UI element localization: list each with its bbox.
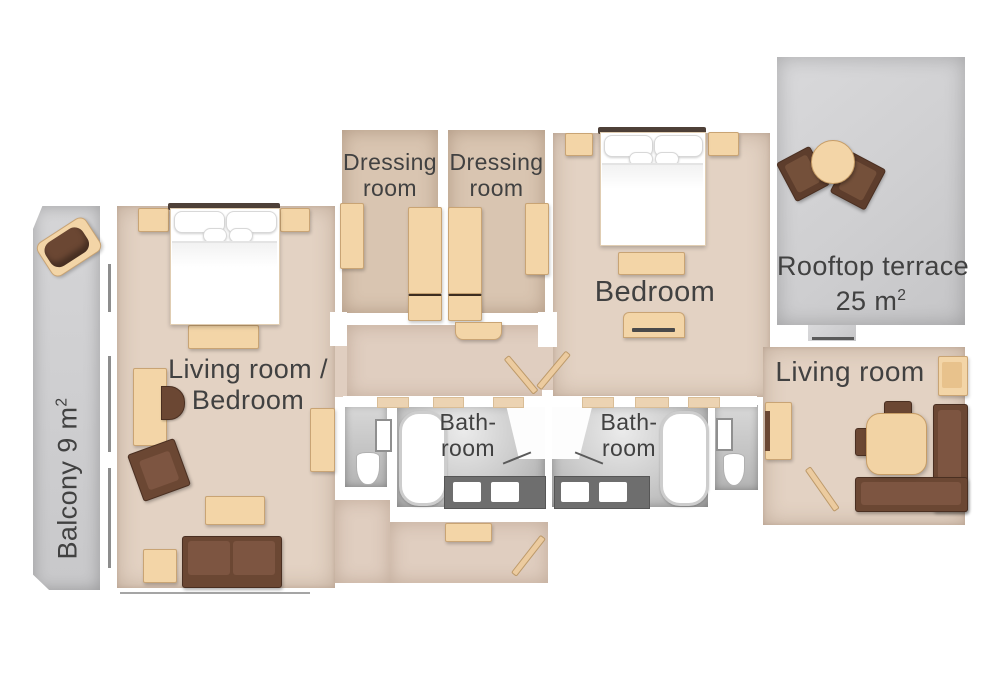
duvet <box>172 241 277 324</box>
door-opening-sill <box>635 397 669 408</box>
corridor-floor <box>335 500 390 583</box>
double-bed <box>600 132 706 246</box>
room-label-line: Bath- <box>397 409 539 435</box>
console-table <box>310 408 335 472</box>
balcony-area-sup: 2 <box>54 397 71 406</box>
sofa-cushion <box>233 541 275 575</box>
coffee-table <box>205 496 265 525</box>
floor-plan: Living room / Bedroom Dressing room Dres… <box>0 0 1000 673</box>
room-label-living-bedroom: Living room / Bedroom <box>117 354 379 416</box>
room-label-line: Living room <box>755 356 945 388</box>
room-label-line: Bath- <box>552 409 706 435</box>
sideboard-edge <box>765 411 770 451</box>
door-opening-sill <box>433 397 464 408</box>
room-label-dressing-left: Dressing room <box>342 149 438 201</box>
room-label-balcony: Balcony 9 m2 <box>53 329 84 629</box>
wall-pier-right <box>538 312 557 347</box>
door-opening-sill <box>688 397 720 408</box>
terrace-door-threshold <box>812 337 854 340</box>
door-opening-sill <box>582 397 614 408</box>
wardrobe <box>408 207 442 294</box>
wardrobe-drawer <box>448 294 482 321</box>
door-opening-sill <box>493 397 524 408</box>
cistern <box>375 419 392 452</box>
room-label-line: Rooftop terrace <box>777 252 965 281</box>
bed-bench <box>188 325 259 349</box>
wardrobe <box>340 203 364 269</box>
sofa <box>182 536 282 588</box>
nightstand <box>280 208 310 232</box>
nightstand <box>565 133 593 156</box>
sink <box>561 482 589 502</box>
dresser <box>623 312 685 338</box>
room-label-line: Dressing <box>342 149 438 175</box>
room-label-line: room <box>342 175 438 201</box>
room-label-bathroom-left: Bath- room <box>397 409 539 461</box>
terrace-area: 25 m <box>836 286 898 316</box>
hall-dresser <box>455 322 502 340</box>
room-label-living-room: Living room <box>755 356 945 388</box>
window-glazing <box>108 468 111 568</box>
sink <box>599 482 627 502</box>
corner-sofa-cushion <box>861 482 961 505</box>
duvet <box>602 163 703 245</box>
room-label-line: Living room / <box>117 354 379 385</box>
dining-table <box>866 413 927 475</box>
room-label-line: 25 m2 <box>777 281 965 316</box>
room-label-line: room <box>448 175 545 201</box>
sink <box>491 482 519 502</box>
wall-lobby-pier <box>542 390 553 407</box>
window-sill-line <box>120 592 310 594</box>
room-label-line: Balcony 9 m2 <box>53 329 84 629</box>
wardrobe <box>525 203 549 275</box>
vanity-counter <box>554 476 650 509</box>
room-label-line: room <box>397 435 539 461</box>
sideboard <box>765 402 792 460</box>
wardrobe <box>448 207 482 294</box>
armchair-cushion <box>942 362 962 388</box>
corner-sofa <box>855 477 968 512</box>
cistern <box>716 418 733 451</box>
wall-pier-left <box>330 312 347 346</box>
sofa-cushion <box>188 541 230 575</box>
room-label-bathroom-right: Bath- room <box>552 409 706 461</box>
window-glazing <box>108 264 111 312</box>
bed-bench <box>618 252 685 275</box>
double-bed <box>170 208 280 325</box>
room-label-line: Dressing <box>448 149 545 175</box>
sink <box>453 482 481 502</box>
room-label-line: room <box>552 435 706 461</box>
terrace-table <box>811 140 855 184</box>
window-glazing <box>108 356 111 452</box>
armchair-cushion <box>139 450 180 490</box>
room-label-line: Bedroom <box>553 276 757 309</box>
hall-sideboard <box>445 523 492 542</box>
room-label-bedroom: Bedroom <box>553 276 757 309</box>
wardrobe-drawer <box>408 294 442 321</box>
side-table <box>143 549 177 583</box>
dresser-handle <box>632 328 675 332</box>
toilet <box>356 452 380 485</box>
nightstand <box>708 132 739 156</box>
vanity-counter <box>444 476 546 509</box>
room-label-terrace: Rooftop terrace 25 m2 <box>777 252 965 316</box>
room-label-line: Bedroom <box>117 385 379 416</box>
door-opening-sill <box>377 397 409 408</box>
balcony-area: Balcony 9 m <box>53 407 83 560</box>
room-label-dressing-right: Dressing room <box>448 149 545 201</box>
nightstand <box>138 208 169 232</box>
terrace-area-sup: 2 <box>897 287 906 304</box>
